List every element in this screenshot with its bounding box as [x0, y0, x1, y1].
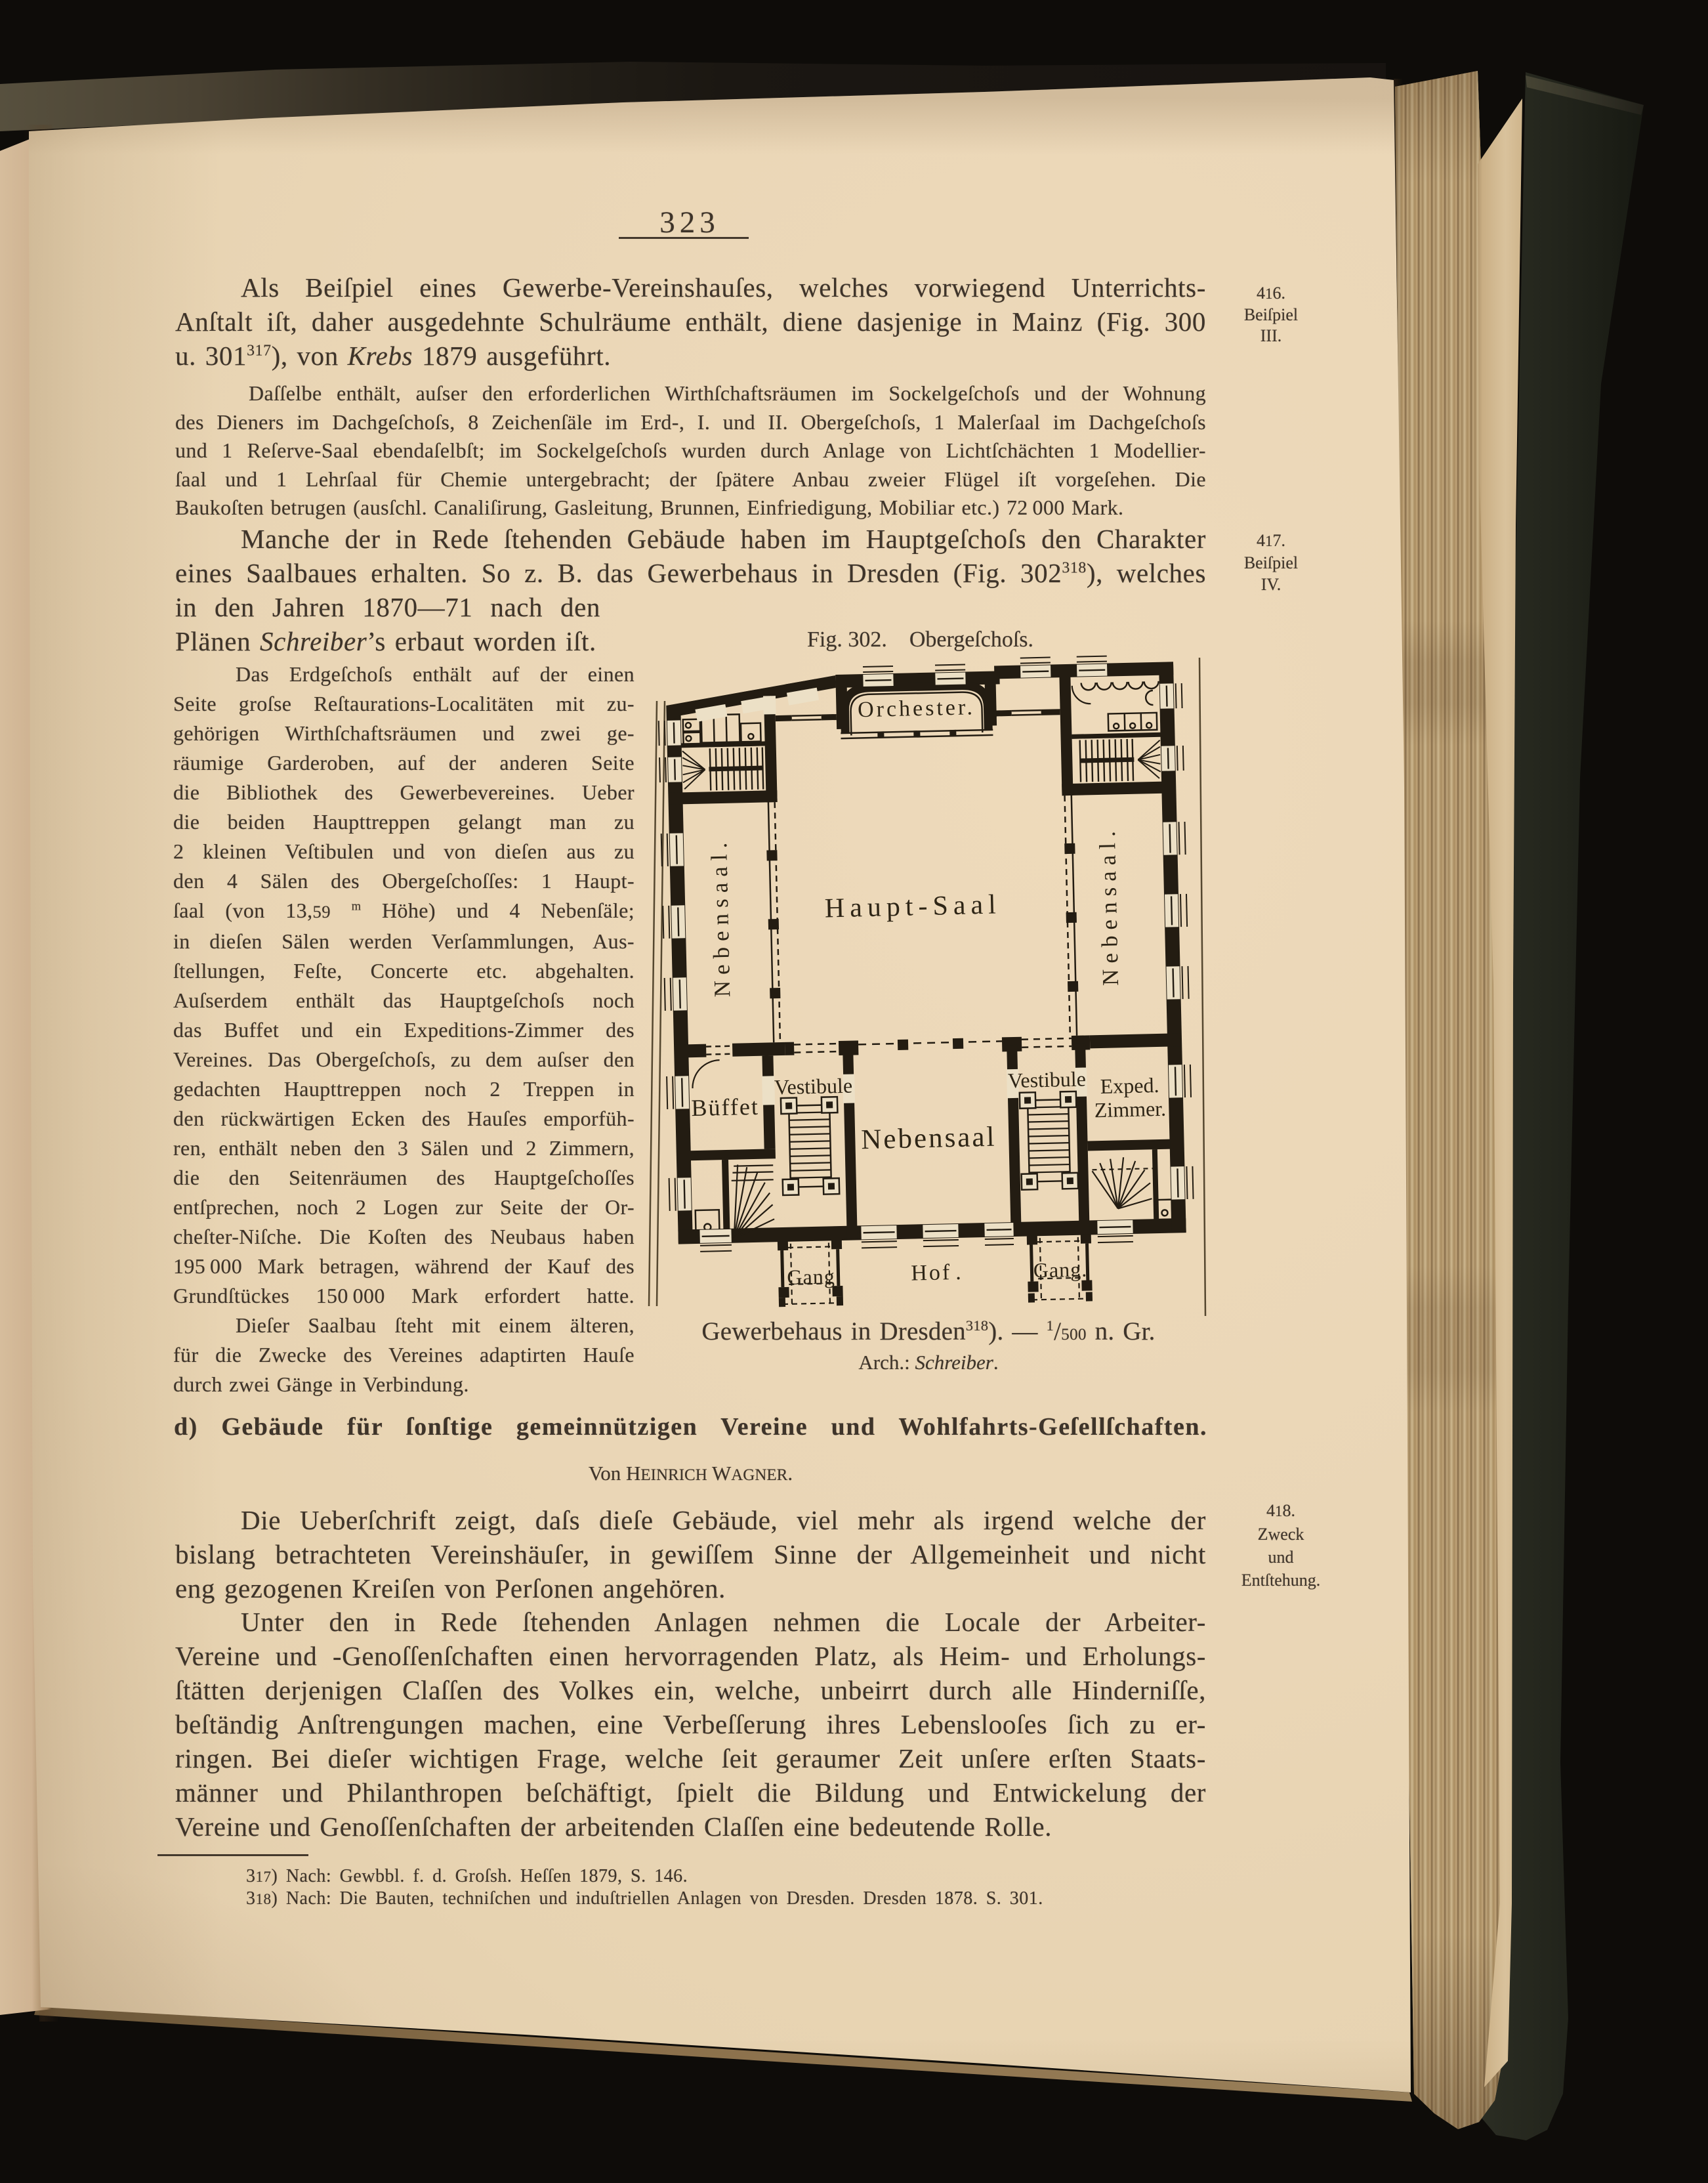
svg-text:Haupt-Saal: Haupt-Saal	[824, 889, 1001, 923]
svg-text:Gang.: Gang.	[1033, 1258, 1087, 1282]
svg-text:Orchester.: Orchester.	[858, 695, 976, 722]
svg-text:Zimmer.: Zimmer.	[1094, 1097, 1166, 1122]
svg-text:Vestibule: Vestibule	[1007, 1067, 1086, 1092]
svg-text:Vestibule: Vestibule	[774, 1074, 853, 1099]
svg-text:Exped.: Exped.	[1100, 1073, 1159, 1098]
svg-text:Nebensaal.: Nebensaal.	[706, 836, 736, 997]
svg-text:Gang: Gang	[787, 1264, 835, 1289]
svg-text:Nebensaal.: Nebensaal.	[1094, 825, 1124, 986]
svg-text:Büffet: Büffet	[691, 1093, 759, 1121]
svg-text:Nebensaal: Nebensaal	[861, 1122, 997, 1156]
svg-text:Hof .: Hof .	[911, 1260, 963, 1286]
